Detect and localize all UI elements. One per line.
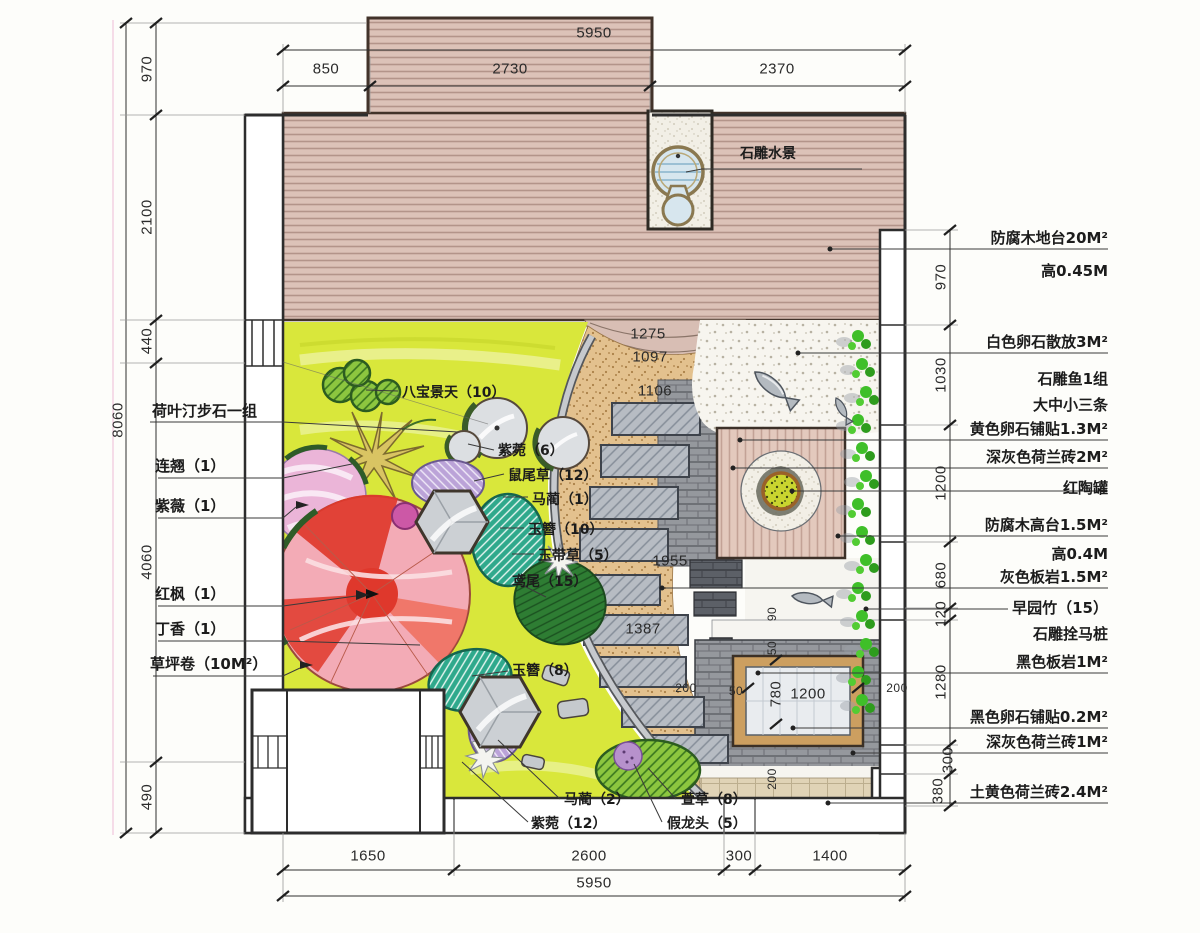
magenta-shrub <box>392 503 418 529</box>
label-sedum: 八宝景天（10） <box>402 382 505 402</box>
right-wall <box>880 230 905 833</box>
label-physostegia: 假龙头（5） <box>667 813 747 833</box>
label-lotus-stepping-stones: 荷叶汀步石一组 <box>152 400 257 421</box>
label-platform-height: 高0.4M <box>1052 543 1109 564</box>
dim-inner-200-left: 200 <box>675 681 697 695</box>
black-slate-piece <box>690 560 742 588</box>
indoor-room <box>252 690 444 833</box>
label-aster-12: 紫菀（12） <box>531 813 606 833</box>
dim-bottom-seg-1650: 1650 <box>350 848 385 865</box>
dim-inner-1275: 1275 <box>630 326 665 343</box>
dim-top-total: 5950 <box>576 25 611 42</box>
wood-platform <box>717 428 845 558</box>
label-iris-lactea-1: 马蔺（1） <box>532 489 598 509</box>
label-wood-platform: 防腐木高台1.5M² <box>985 514 1108 535</box>
label-crape-myrtle: 紫薇（1） <box>155 495 225 516</box>
label-stone-water-feature: 石雕水景 <box>740 143 796 163</box>
dim-right-seg-1280: 1280 <box>933 664 950 699</box>
label-red-clay-pot: 红陶罐 <box>1063 477 1108 498</box>
dim-right-seg-680: 680 <box>933 562 950 589</box>
dim-inner-1097: 1097 <box>632 349 667 366</box>
label-black-slate: 黑色板岩1M² <box>1016 651 1108 672</box>
dim-right-seg-380: 380 <box>930 778 947 805</box>
dim-inner-50-top: 50 <box>765 641 779 655</box>
dim-inner-1106: 1106 <box>638 383 672 400</box>
label-ribbon-grass: 玉带草（5） <box>538 545 618 565</box>
dim-inner-200-bottom: 200 <box>765 768 779 790</box>
dim-top-seg-850: 850 <box>313 61 340 78</box>
white-pebble-area <box>692 320 880 441</box>
dim-right-seg-970: 970 <box>933 264 950 291</box>
label-aster-6: 紫菀（6） <box>498 440 564 460</box>
dim-bottom-seg-2600: 2600 <box>571 848 606 865</box>
label-bamboo: 早园竹（15） <box>1012 597 1108 618</box>
label-deck-height: 高0.45M <box>1041 260 1108 281</box>
dim-left-seg-970: 970 <box>139 56 156 83</box>
label-white-pebbles: 白色卵石散放3M² <box>986 331 1108 352</box>
dim-left-seg-440: 440 <box>139 328 156 355</box>
dim-inner-1200: 1200 <box>790 686 825 703</box>
dim-inner-50-left: 50 <box>729 684 743 698</box>
label-tan-brick: 土黄色荷兰砖2.4M² <box>970 781 1108 802</box>
dim-bottom-seg-300: 300 <box>726 848 753 865</box>
dim-top-seg-2370: 2370 <box>759 61 794 78</box>
label-black-pebble-paving: 黑色卵石铺贴0.2M² <box>970 706 1108 727</box>
label-fish-sizes: 大中小三条 <box>1033 394 1108 415</box>
dim-left-seg-490: 490 <box>139 784 156 811</box>
gourd-vessel <box>663 195 693 225</box>
dim-right-seg-1200: 1200 <box>933 465 950 500</box>
physostegia-cluster <box>614 742 642 770</box>
label-lawn-roll: 草坪卷（10M²） <box>150 653 267 674</box>
dim-left-seg-2100: 2100 <box>139 199 156 234</box>
dim-right-seg-1030: 1030 <box>933 357 950 392</box>
label-forsythia: 连翘（1） <box>155 455 225 476</box>
dim-left-seg-4060: 4060 <box>139 544 156 579</box>
dim-inner-780: 780 <box>768 681 785 708</box>
dim-bottom-total: 5950 <box>576 875 611 892</box>
label-wood-deck: 防腐木地台20M² <box>991 227 1108 248</box>
dim-left-total: 8060 <box>110 402 127 437</box>
black-slate-piece <box>694 592 736 616</box>
label-stone-fish: 石雕鱼1组 <box>1038 368 1108 389</box>
label-salvia: 鼠尾草（12） <box>508 465 597 485</box>
dim-inner-1955: 1955 <box>652 553 687 570</box>
label-daylily: 萱草（8） <box>681 789 747 809</box>
dim-inner-200-right: 200 <box>886 681 908 695</box>
label-hosta-10: 玉簪（10） <box>528 519 603 539</box>
label-red-maple: 红枫（1） <box>155 583 225 604</box>
dim-right-seg-300: 300 <box>940 747 957 774</box>
dim-top-seg-2730: 2730 <box>492 61 527 78</box>
dim-inner-90: 90 <box>765 607 779 621</box>
label-hitching-post: 石雕拴马桩 <box>1033 623 1108 644</box>
label-iris-15: 鸢尾（15） <box>512 571 587 591</box>
label-grey-slate: 灰色板岩1.5M² <box>1000 566 1108 587</box>
dim-right-seg-120: 120 <box>933 601 950 628</box>
label-hosta-8: 玉簪（8） <box>512 660 578 680</box>
label-lilac: 丁香（1） <box>155 618 225 639</box>
label-dark-grey-brick-2m: 深灰色荷兰砖2M² <box>986 446 1108 467</box>
label-dark-grey-brick-1m: 深灰色荷兰砖1M² <box>986 731 1108 752</box>
wood-deck-area <box>283 18 905 367</box>
dim-bottom-seg-1400: 1400 <box>812 848 847 865</box>
label-iris-lactea-2: 马蔺（2） <box>564 789 630 809</box>
stone-water-feature <box>648 111 712 229</box>
label-yellow-pebble-paving: 黄色卵石铺贴1.3M² <box>970 418 1108 439</box>
garden-plan-canvas: 5950 850 2730 2370 1650 2600 300 1400 59… <box>0 0 1200 933</box>
dim-inner-1387: 1387 <box>625 621 660 638</box>
